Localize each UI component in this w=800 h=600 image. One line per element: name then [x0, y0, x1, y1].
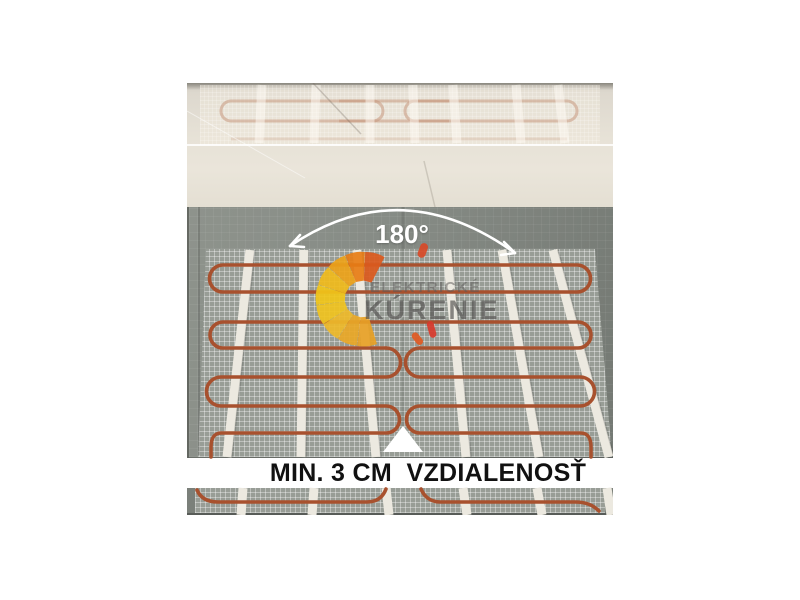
fixing-strap: [607, 488, 611, 515]
image-canvas: MIN. 3 CM VZDIALENOSŤ: [0, 0, 800, 600]
watermark-text-line1: ELEKTRICKÉ: [370, 279, 481, 296]
product-photo: MIN. 3 CM VZDIALENOSŤ: [187, 83, 613, 515]
watermark-text-line2: KÚRENIE: [364, 295, 500, 326]
pointer-triangle: [383, 426, 423, 452]
fixing-strap: [502, 250, 539, 457]
fixing-strap: [227, 250, 250, 457]
faded-straps: [259, 85, 565, 143]
logo-spark: [410, 331, 424, 346]
angle-label: 180°: [337, 219, 467, 250]
fixing-strap: [553, 250, 609, 457]
fixing-strap: [301, 250, 304, 457]
